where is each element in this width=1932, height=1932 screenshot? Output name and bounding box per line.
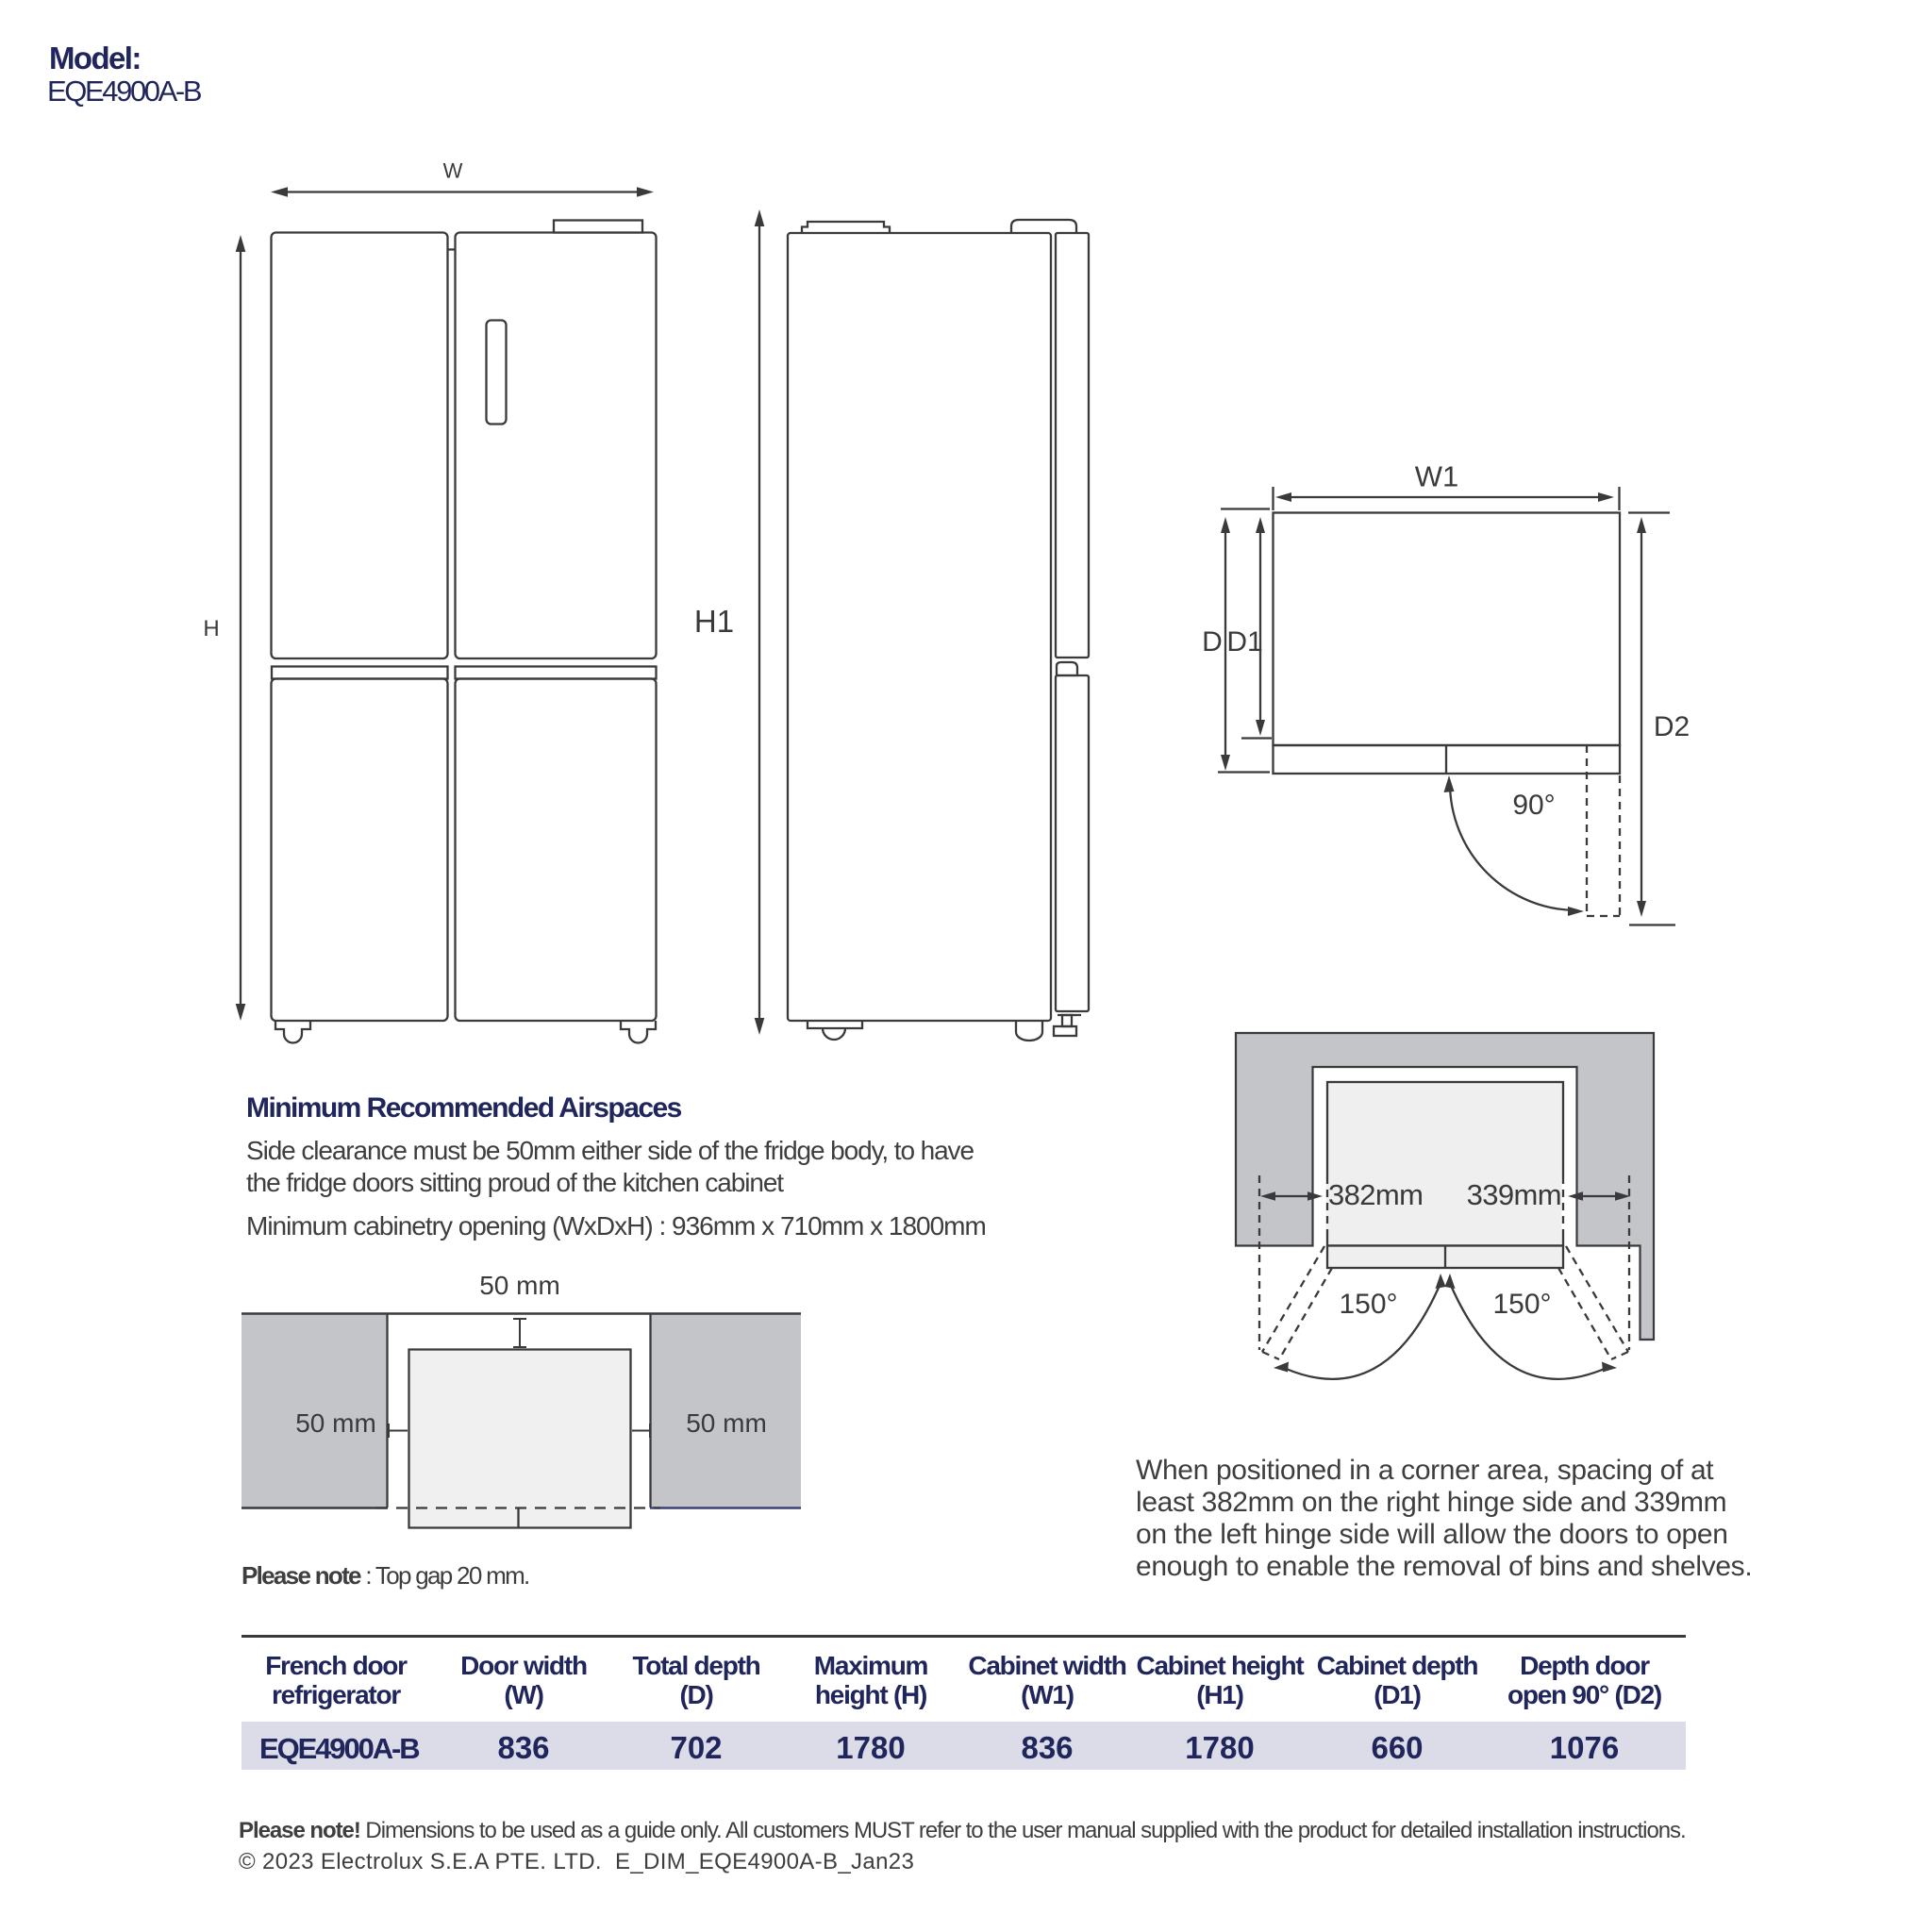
svg-text:50 mm: 50 mm	[686, 1408, 767, 1438]
svg-text:D2: D2	[1654, 711, 1690, 742]
svg-text:D1: D1	[1226, 626, 1262, 658]
svg-text:150°: 150°	[1492, 1289, 1551, 1320]
svg-text:90°: 90°	[1512, 790, 1555, 821]
svg-text:50 mm: 50 mm	[295, 1408, 376, 1438]
svg-text:339mm: 339mm	[1467, 1178, 1561, 1211]
svg-text:D: D	[1202, 626, 1223, 658]
svg-text:382mm: 382mm	[1328, 1178, 1423, 1211]
svg-text:H1: H1	[694, 604, 734, 639]
svg-text:H: H	[203, 616, 219, 641]
svg-text:150°: 150°	[1339, 1289, 1397, 1320]
svg-text:W: W	[443, 159, 463, 183]
svg-text:50 mm: 50 mm	[479, 1271, 560, 1300]
svg-text:W1: W1	[1415, 460, 1459, 493]
